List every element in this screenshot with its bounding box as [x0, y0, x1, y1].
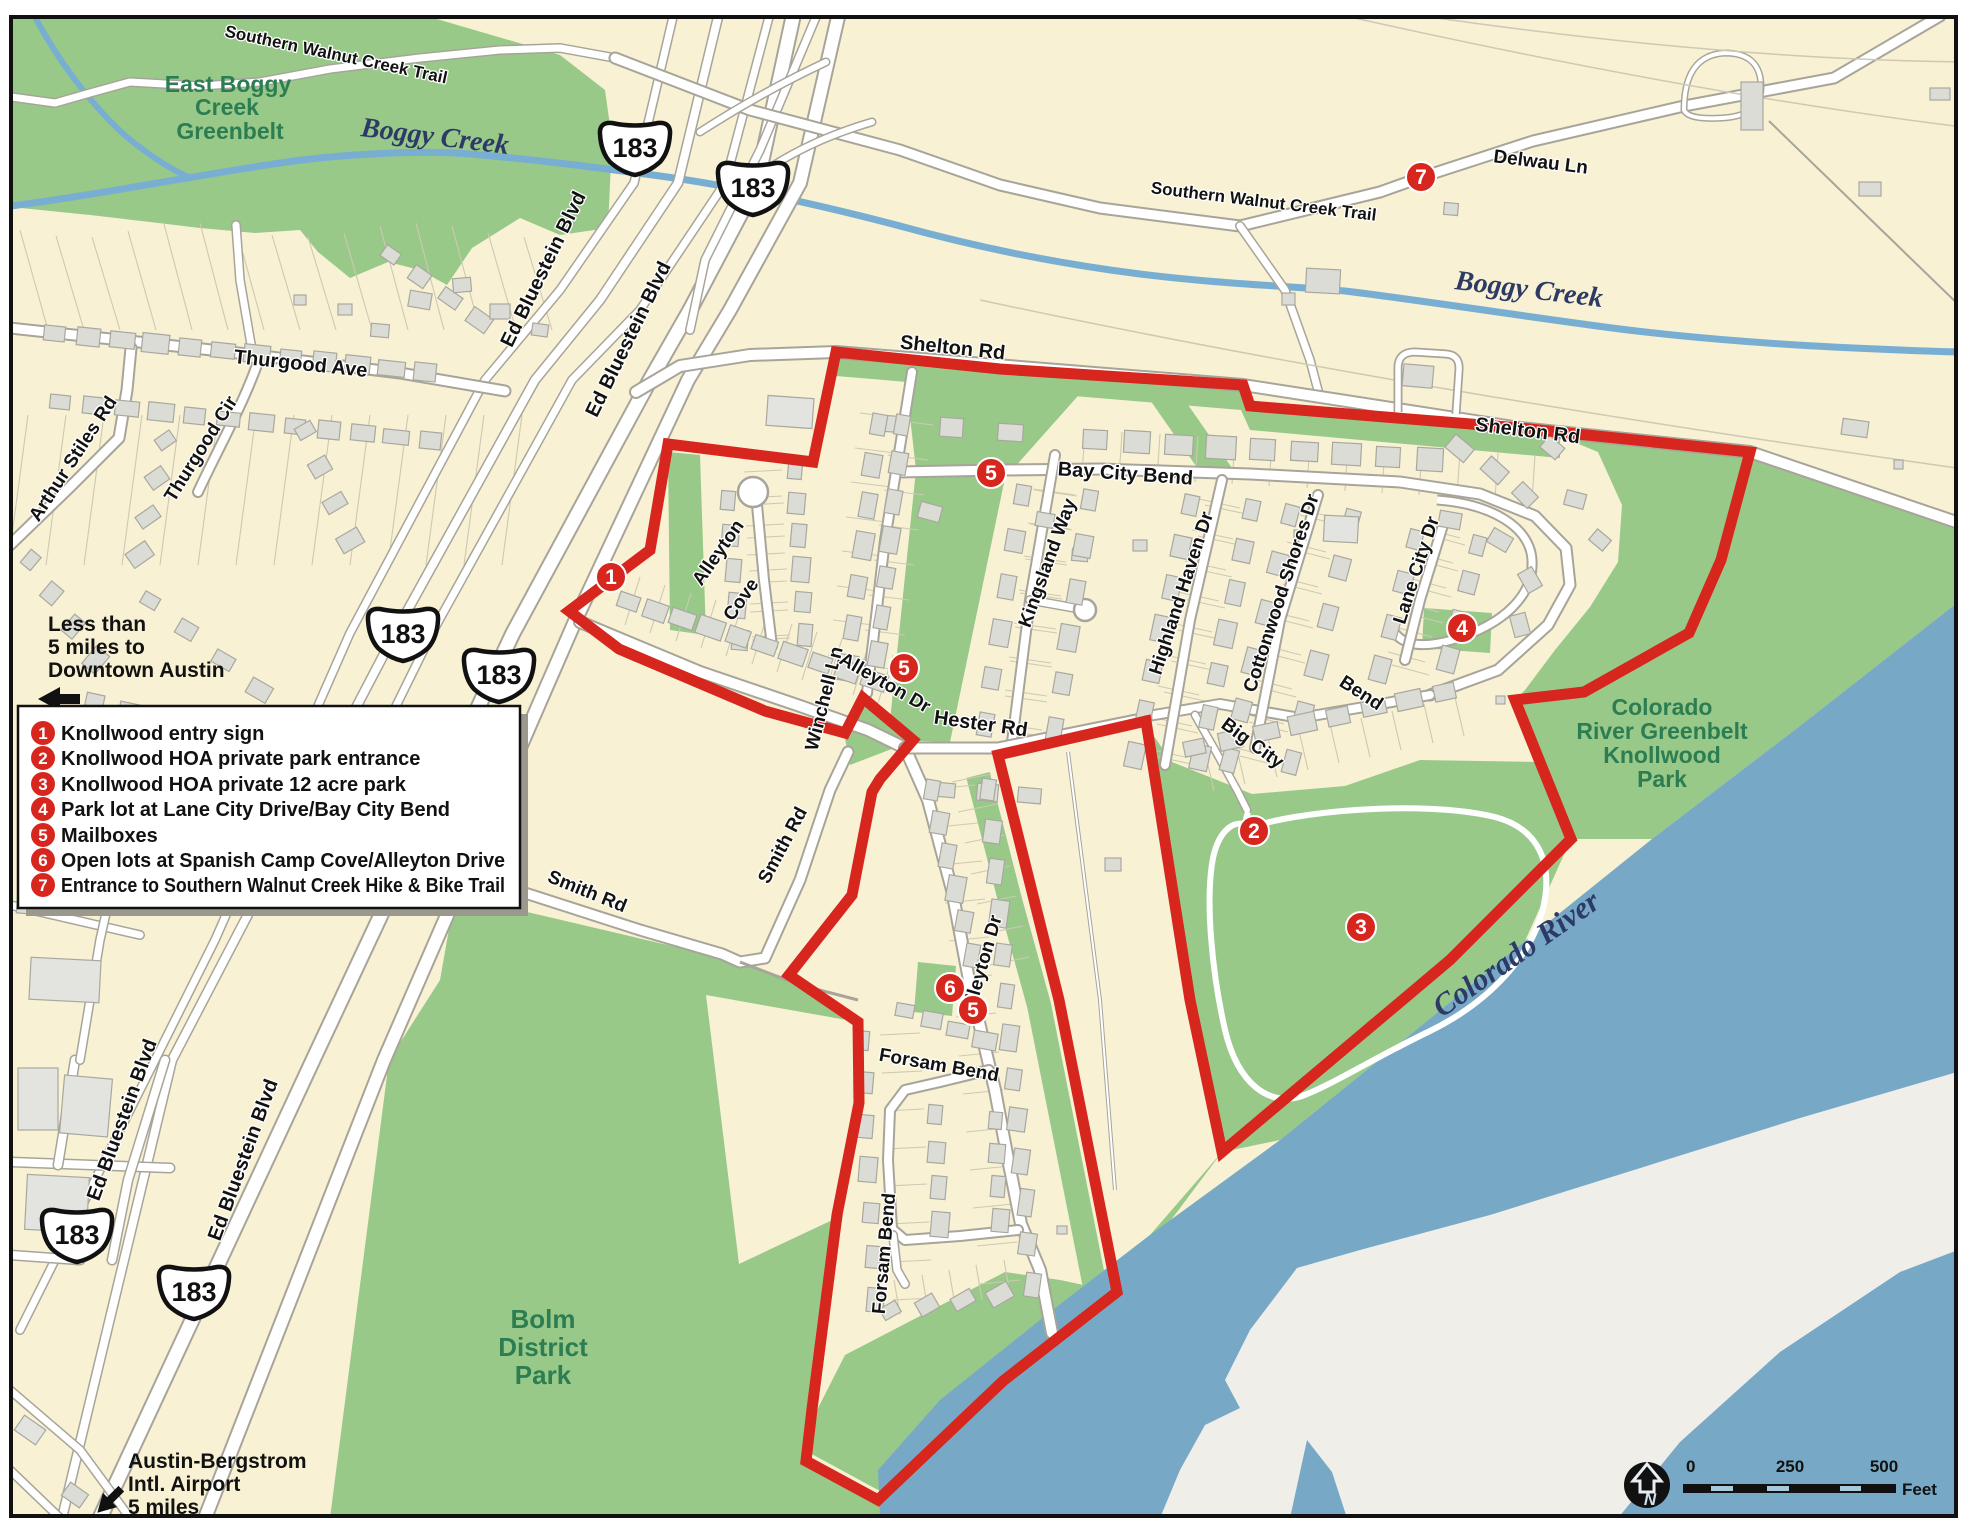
svg-text:183: 183 [380, 619, 425, 649]
svg-text:Knollwood HOA private park ent: Knollwood HOA private park entrance [61, 748, 420, 770]
svg-text:3: 3 [38, 775, 47, 794]
svg-text:4: 4 [38, 800, 48, 819]
svg-text:5: 5 [898, 657, 910, 680]
svg-text:2: 2 [1248, 820, 1260, 843]
svg-text:1: 1 [605, 566, 617, 589]
svg-text:Bolm: Bolm [511, 1304, 576, 1334]
svg-text:250: 250 [1776, 1457, 1804, 1476]
svg-text:Entrance to Southern Walnut Cr: Entrance to Southern Walnut Creek Hike &… [61, 875, 505, 897]
svg-text:Austin-Bergstrom: Austin-Bergstrom [128, 1450, 307, 1473]
svg-text:183: 183 [476, 660, 521, 690]
svg-text:Park: Park [1637, 766, 1687, 792]
svg-text:Feet: Feet [1902, 1480, 1937, 1499]
svg-text:Intl. Airport: Intl. Airport [128, 1473, 240, 1496]
svg-text:Colorado: Colorado [1612, 694, 1713, 720]
svg-text:District: District [498, 1332, 588, 1362]
svg-text:Park: Park [515, 1360, 572, 1390]
svg-text:6: 6 [38, 851, 47, 870]
svg-text:5: 5 [985, 462, 997, 485]
svg-text:183: 183 [171, 1277, 216, 1307]
svg-text:Park lot at Lane City Drive/Ba: Park lot at Lane City Drive/Bay City Ben… [61, 799, 450, 821]
svg-text:3: 3 [1355, 916, 1367, 939]
svg-text:Downtown Austin: Downtown Austin [48, 659, 225, 682]
svg-text:0: 0 [1686, 1457, 1695, 1476]
svg-text:183: 183 [730, 173, 775, 203]
svg-text:Knollwood: Knollwood [1603, 742, 1721, 768]
svg-text:Creek: Creek [195, 94, 259, 120]
svg-text:5 miles to: 5 miles to [48, 636, 145, 659]
svg-text:4: 4 [1456, 617, 1468, 640]
svg-text:Less than: Less than [48, 613, 146, 636]
svg-text:5: 5 [38, 826, 47, 845]
svg-text:500: 500 [1870, 1457, 1898, 1476]
svg-text:Greenbelt: Greenbelt [176, 118, 284, 144]
svg-text:183: 183 [54, 1220, 99, 1250]
svg-text:7: 7 [1415, 166, 1427, 189]
svg-text:River Greenbelt: River Greenbelt [1576, 718, 1748, 744]
svg-text:5: 5 [967, 999, 979, 1022]
svg-text:1: 1 [38, 724, 47, 743]
svg-text:7: 7 [38, 876, 47, 895]
svg-text:Knollwood HOA private 12 acre: Knollwood HOA private 12 acre park [61, 774, 407, 796]
svg-text:6: 6 [944, 977, 956, 1000]
svg-text:Open lots at Spanish Camp Cove: Open lots at Spanish Camp Cove/Alleyton … [61, 850, 505, 872]
svg-text:2: 2 [38, 749, 47, 768]
svg-text:183: 183 [612, 133, 657, 163]
svg-text:Mailboxes: Mailboxes [61, 825, 158, 847]
svg-text:N: N [1644, 1490, 1657, 1509]
svg-text:Knollwood entry sign: Knollwood entry sign [61, 723, 264, 745]
